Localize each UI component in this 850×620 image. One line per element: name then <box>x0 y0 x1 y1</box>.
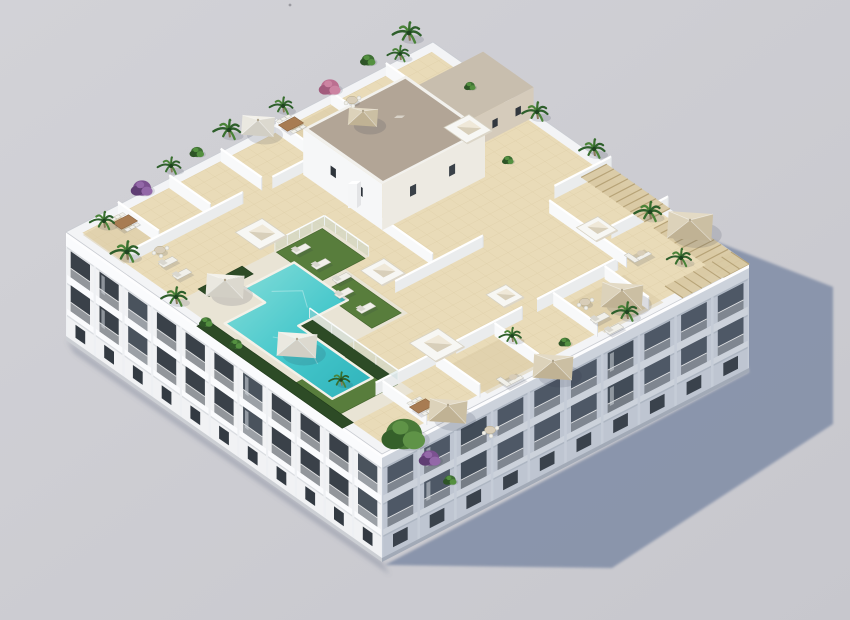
facade-pier <box>122 286 124 378</box>
facade-pier <box>711 296 714 387</box>
facade-pier <box>151 306 153 398</box>
facade-pier <box>674 315 677 406</box>
facade-pier <box>266 387 268 479</box>
facade-pier <box>180 326 182 418</box>
facade-pier <box>323 427 325 519</box>
dust-speck <box>289 4 292 7</box>
curtain <box>426 481 430 501</box>
facade-pier <box>66 246 67 337</box>
facade-pier <box>638 334 641 425</box>
curtain <box>610 352 614 372</box>
facade-pier <box>601 353 604 444</box>
facade-pier <box>454 429 457 520</box>
facade-pier <box>528 391 531 482</box>
facade-pier <box>381 467 382 558</box>
chimney <box>348 184 357 208</box>
facade-pier <box>295 407 297 499</box>
curtain <box>610 386 614 406</box>
curtain <box>245 376 249 396</box>
facade-pier <box>748 278 749 369</box>
facade-pier <box>237 366 239 458</box>
render-stage <box>0 0 850 620</box>
chimney-side <box>357 181 361 208</box>
curtain <box>101 309 104 330</box>
facade-pier <box>94 265 96 357</box>
facade-pier <box>352 447 354 539</box>
facade-pier <box>491 410 494 501</box>
facade-pier <box>382 467 383 558</box>
curtain <box>101 275 104 296</box>
curtain <box>245 410 249 430</box>
building-aerial-render <box>0 0 850 620</box>
facade-pier <box>209 346 211 438</box>
